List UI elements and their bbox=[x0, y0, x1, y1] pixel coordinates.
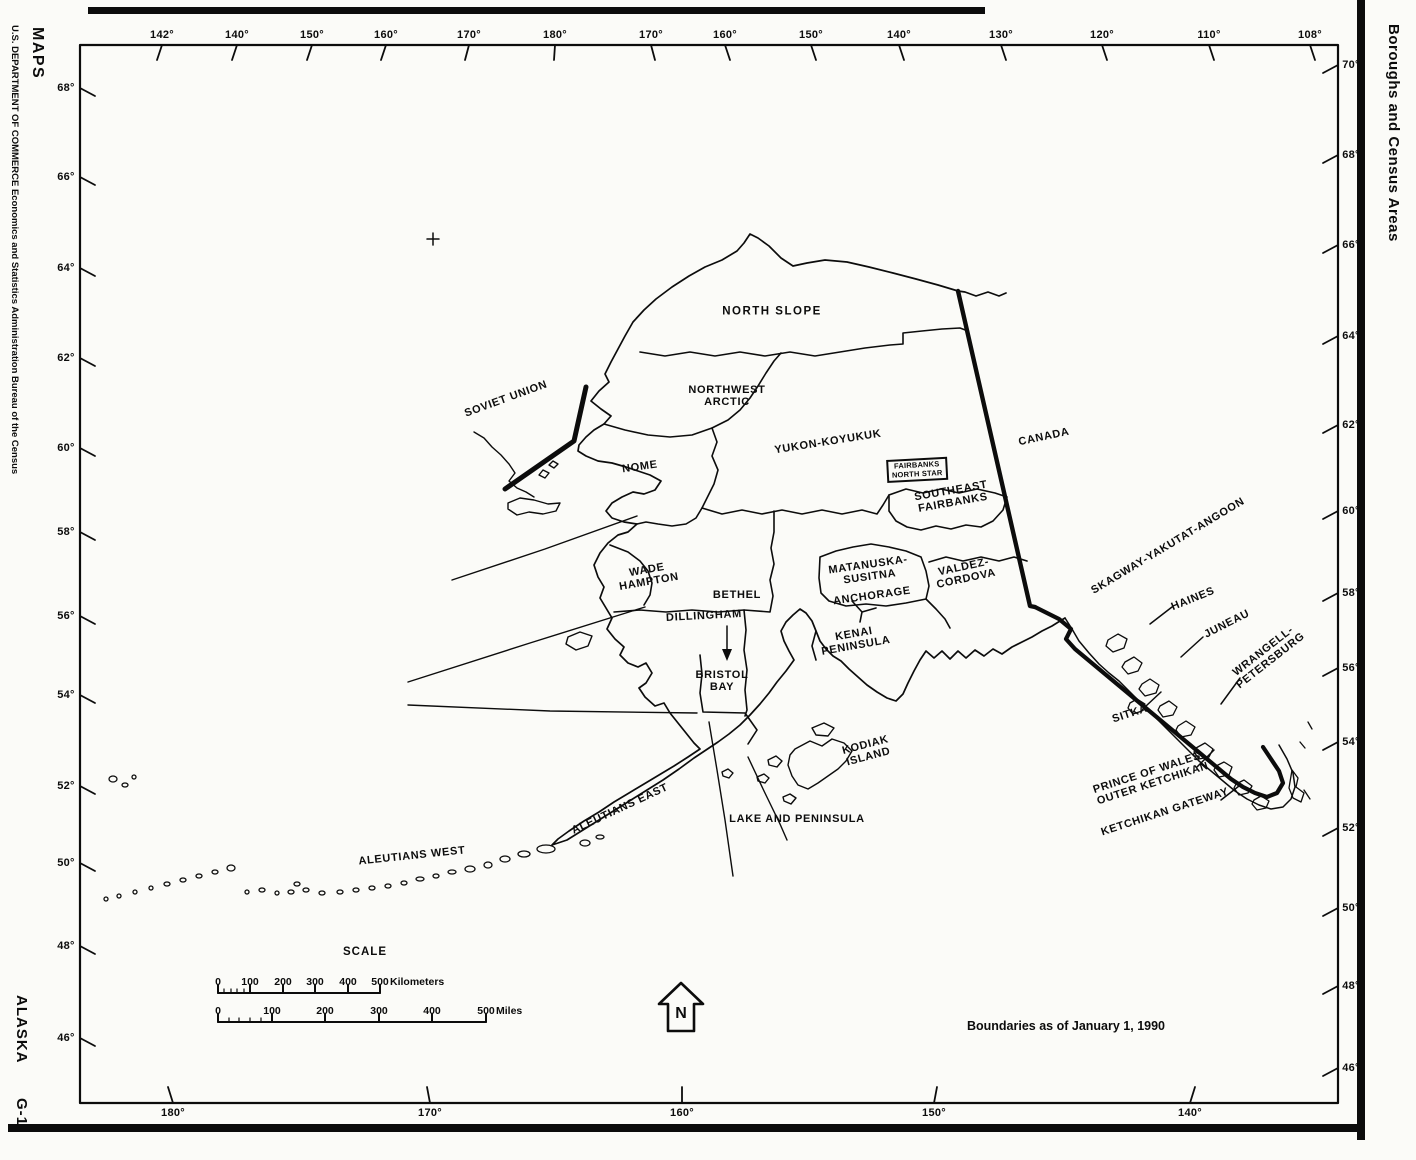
scale-title: SCALE bbox=[343, 946, 387, 958]
soviet-union-boundary-line bbox=[505, 387, 586, 489]
map-neatline bbox=[80, 45, 1338, 1103]
longitude-label: 150° bbox=[922, 1107, 946, 1119]
region-label-north-slope: NORTH SLOPE bbox=[722, 306, 822, 319]
top-graticule-ticks bbox=[157, 45, 1315, 60]
latitude-label: 50° bbox=[1342, 902, 1360, 914]
scale-mi-tick-label: 0 bbox=[215, 1005, 221, 1017]
latitude-label: 60° bbox=[1342, 505, 1360, 517]
latitude-label: 54° bbox=[57, 689, 75, 701]
boundaries-date-note: Boundaries as of January 1, 1990 bbox=[967, 1019, 1165, 1033]
longitude-label: 180° bbox=[543, 29, 567, 41]
nunivak-island bbox=[566, 632, 592, 650]
latitude-label: 46° bbox=[57, 1032, 75, 1044]
scale-km-tick-label: 500 bbox=[371, 976, 389, 988]
scale-mi-tick-label: 400 bbox=[423, 1005, 441, 1017]
latitude-label: 54° bbox=[1342, 736, 1360, 748]
latitude-label: 64° bbox=[1342, 330, 1360, 342]
latitude-label: 58° bbox=[1342, 587, 1360, 599]
longitude-label: 170° bbox=[639, 29, 663, 41]
st-lawrence-island bbox=[508, 498, 560, 515]
latitude-label: 60° bbox=[57, 442, 75, 454]
scale-mi-tick-label: 200 bbox=[316, 1005, 334, 1017]
scale-mi-tick-label: 300 bbox=[370, 1005, 388, 1017]
longitude-label: 160° bbox=[670, 1107, 694, 1119]
scale-km-tick-label: 200 bbox=[274, 976, 292, 988]
longitude-label: 170° bbox=[418, 1107, 442, 1119]
longitude-label: 180° bbox=[161, 1107, 185, 1119]
region-label-lake-and-peninsula: LAKE AND PENINSULA bbox=[729, 813, 865, 825]
longitude-label: 140° bbox=[887, 29, 911, 41]
scale-mi-tick-label: 500 bbox=[477, 1005, 495, 1017]
longitude-label: 130° bbox=[989, 29, 1013, 41]
north-arrow-letter: N bbox=[675, 1005, 687, 1023]
scale-mi-tick-label: 100 bbox=[263, 1005, 281, 1017]
latitude-label: 46° bbox=[1342, 1062, 1360, 1074]
graticule-cross bbox=[427, 233, 439, 245]
scale-km-tick-label: 100 bbox=[241, 976, 259, 988]
kodiak-island-group bbox=[722, 723, 852, 804]
scale-km-tick-label: 300 bbox=[306, 976, 324, 988]
region-label-northwest-arctic: NORTHWEST ARCTIC bbox=[688, 384, 765, 408]
aleutian-islands-chain bbox=[104, 775, 604, 901]
alaska-map-canvas bbox=[0, 0, 1416, 1160]
scale-mi-unit: Miles bbox=[496, 1005, 522, 1017]
latitude-label: 64° bbox=[57, 262, 75, 274]
scale-bar-miles bbox=[218, 1014, 486, 1022]
latitude-label: 68° bbox=[1342, 149, 1360, 161]
longitude-label: 140° bbox=[225, 29, 249, 41]
longitude-label: 110° bbox=[1197, 29, 1220, 41]
latitude-label: 70° bbox=[1342, 59, 1360, 71]
scale-km-tick-label: 400 bbox=[339, 976, 357, 988]
region-label-bristol-bay: BRISTOL BAY bbox=[696, 669, 749, 693]
alaska-mainland-coastline bbox=[552, 234, 1065, 845]
dillingham-arrowhead bbox=[722, 649, 732, 661]
longitude-label: 170° bbox=[457, 29, 481, 41]
latitude-label: 58° bbox=[57, 526, 75, 538]
latitude-label: 52° bbox=[1342, 822, 1360, 834]
scale-km-tick-label: 0 bbox=[215, 976, 221, 988]
longitude-label: 120° bbox=[1090, 29, 1114, 41]
longitude-label: 150° bbox=[799, 29, 823, 41]
longitude-label: 108° bbox=[1298, 29, 1322, 41]
longitude-label: 160° bbox=[374, 29, 398, 41]
latitude-label: 48° bbox=[1342, 980, 1360, 992]
longitude-label: 150° bbox=[300, 29, 324, 41]
latitude-label: 68° bbox=[57, 82, 75, 94]
scale-km-unit: Kilometers bbox=[390, 976, 444, 988]
region-label-bethel: BETHEL bbox=[713, 589, 761, 601]
longitude-label: 160° bbox=[713, 29, 737, 41]
latitude-label: 56° bbox=[57, 610, 75, 622]
latitude-label: 50° bbox=[57, 857, 75, 869]
latitude-label: 62° bbox=[57, 352, 75, 364]
latitude-label: 56° bbox=[1342, 662, 1360, 674]
soviet-coastline bbox=[474, 432, 558, 497]
latitude-label: 62° bbox=[1342, 419, 1360, 431]
region-label-fairbanks-north-star: FAIRBANKS NORTH STAR bbox=[886, 457, 948, 483]
left-graticule-ticks bbox=[80, 88, 95, 1046]
scanned-map-page: U.S. DEPARTMENT OF COMMERCE Economics an… bbox=[0, 0, 1416, 1160]
longitude-label: 140° bbox=[1178, 1107, 1202, 1119]
latitude-label: 66° bbox=[57, 171, 75, 183]
latitude-label: 48° bbox=[57, 940, 75, 952]
borough-boundaries bbox=[604, 328, 1027, 744]
latitude-label: 52° bbox=[57, 780, 75, 792]
bottom-graticule-ticks bbox=[168, 1087, 1195, 1103]
right-graticule-ticks bbox=[1323, 65, 1338, 1076]
latitude-label: 66° bbox=[1342, 239, 1360, 251]
longitude-label: 142° bbox=[150, 29, 174, 41]
